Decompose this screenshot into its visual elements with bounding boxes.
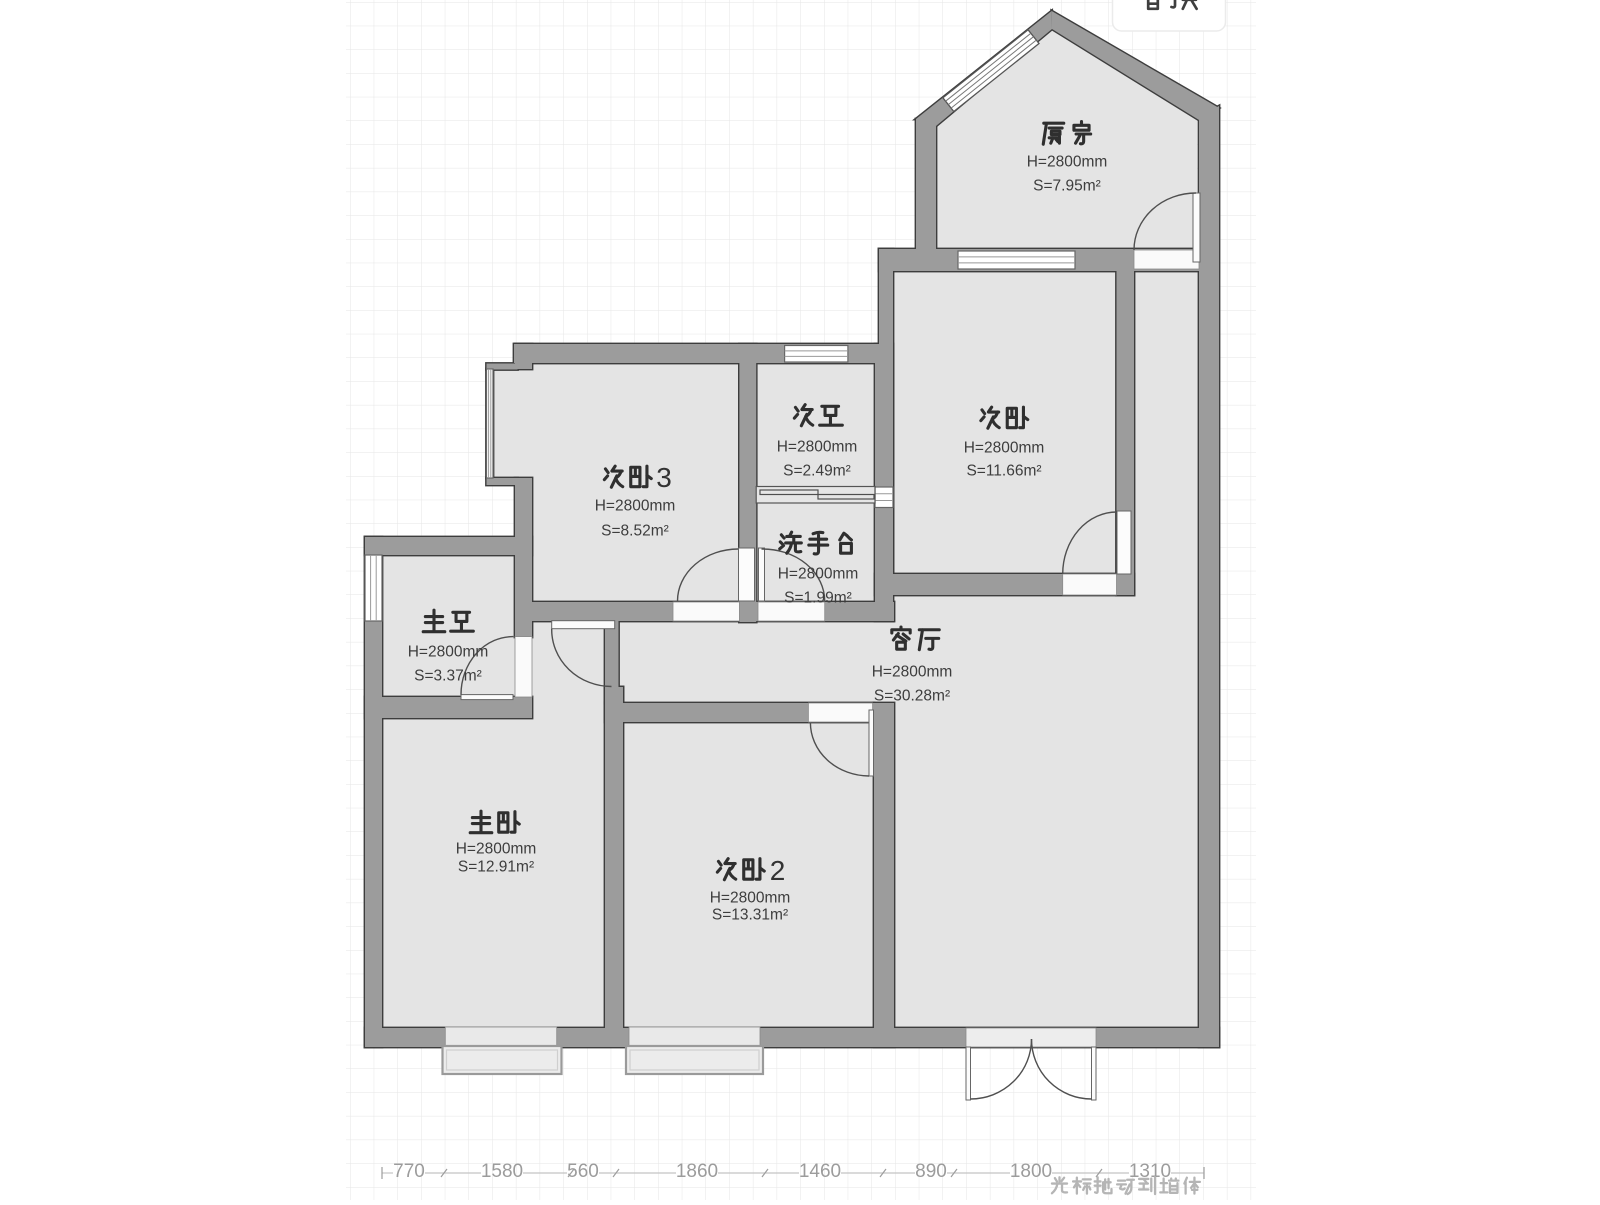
svg-text:H=2800mm: H=2800mm: [872, 664, 953, 681]
svg-text:H=2800mm: H=2800mm: [964, 440, 1045, 457]
svg-text:890: 890: [915, 1161, 947, 1182]
svg-text:1310: 1310: [1129, 1161, 1171, 1182]
svg-text:S=2.49m²: S=2.49m²: [783, 463, 851, 480]
svg-text:S=13.31m²: S=13.31m²: [712, 907, 788, 924]
svg-text:1580: 1580: [481, 1161, 523, 1182]
svg-text:770: 770: [393, 1161, 425, 1182]
svg-text:3: 3: [656, 462, 672, 493]
svg-text:H=2800mm: H=2800mm: [778, 566, 859, 583]
svg-text:H=2800mm: H=2800mm: [595, 498, 676, 515]
svg-text:1860: 1860: [676, 1161, 718, 1182]
svg-text:H=2800mm: H=2800mm: [1027, 154, 1108, 171]
svg-text:H=2800mm: H=2800mm: [408, 644, 489, 661]
svg-text:S=11.66m²: S=11.66m²: [966, 463, 1041, 480]
svg-text:H=2800mm: H=2800mm: [777, 439, 858, 456]
svg-text:1800: 1800: [1010, 1161, 1052, 1182]
svg-text:S=30.28m²: S=30.28m²: [874, 688, 950, 705]
svg-text:2: 2: [770, 855, 786, 886]
svg-text:S=3.37m²: S=3.37m²: [414, 668, 482, 685]
svg-text:S=12.91m²: S=12.91m²: [458, 859, 534, 876]
svg-text:1460: 1460: [799, 1161, 841, 1182]
svg-text:560: 560: [567, 1161, 599, 1182]
svg-text:H=2800mm: H=2800mm: [710, 890, 791, 907]
svg-text:S=1.99m²: S=1.99m²: [784, 590, 852, 607]
svg-text:S=7.95m²: S=7.95m²: [1033, 178, 1101, 195]
svg-text:S=8.52m²: S=8.52m²: [601, 523, 669, 540]
svg-text:H=2800mm: H=2800mm: [456, 841, 537, 858]
